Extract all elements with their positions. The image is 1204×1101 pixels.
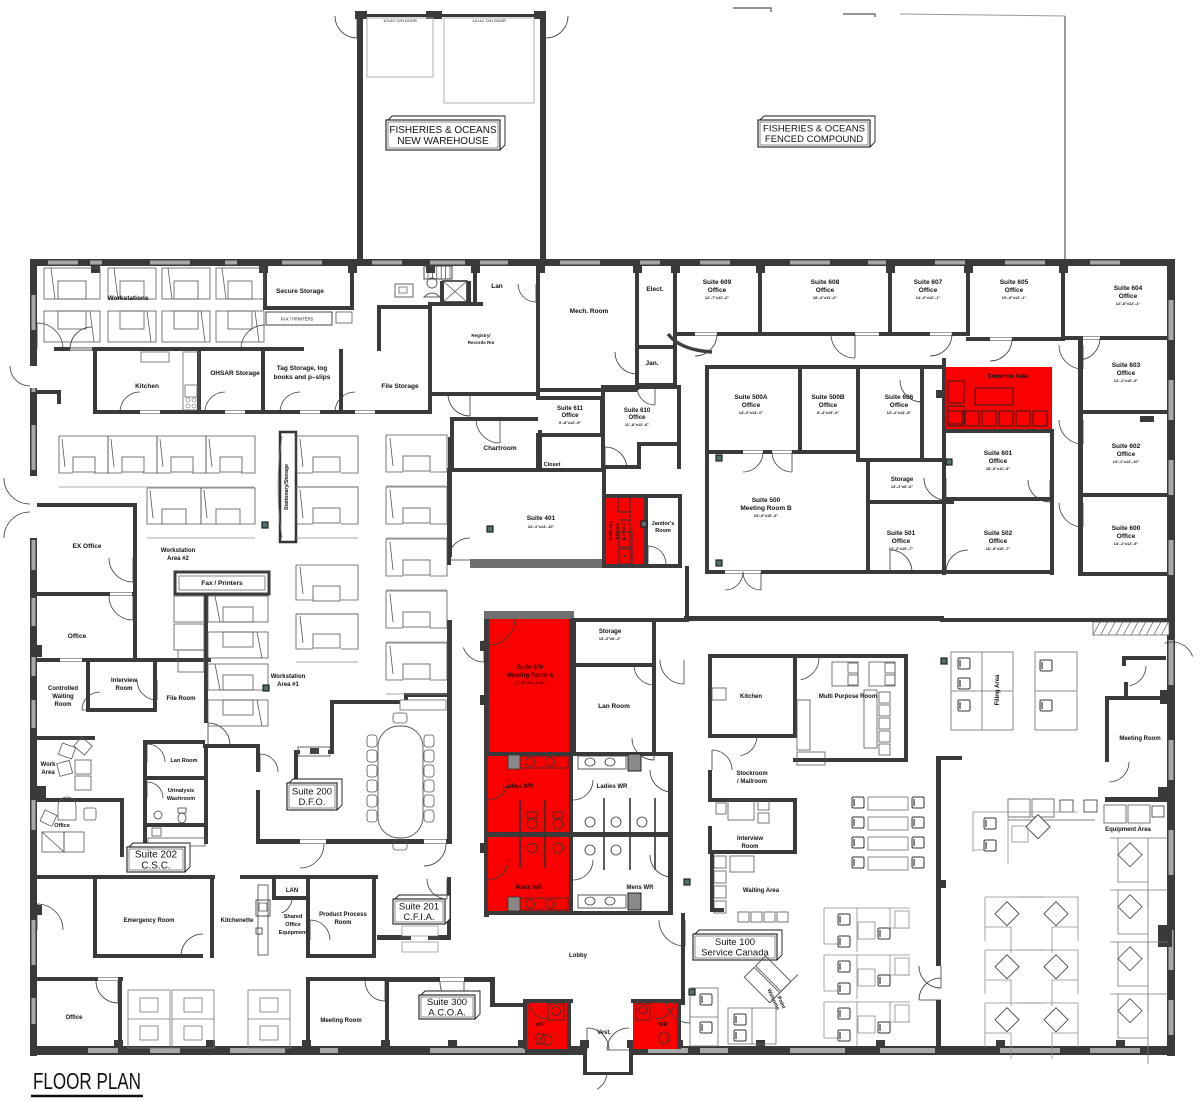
- svg-text:10'x10' O/H DOOR: 10'x10' O/H DOOR: [383, 18, 417, 23]
- svg-text:Office: Office: [54, 823, 70, 829]
- svg-text:Suite 502: Suite 502: [984, 530, 1013, 537]
- svg-text:Area: Area: [41, 770, 55, 776]
- svg-text:Fax / Printers: Fax / Printers: [201, 580, 243, 587]
- svg-text:WR: WR: [658, 1022, 667, 1028]
- svg-text:13'–10"x21'–6 1/2": 13'–10"x21'–6 1/2": [514, 681, 545, 685]
- svg-text:Suite 201: Suite 201: [399, 902, 439, 913]
- svg-text:Office: Office: [1119, 293, 1138, 300]
- svg-text:13'–2"x6'–6": 13'–2"x6'–6": [891, 485, 913, 489]
- svg-text:Interview: Interview: [737, 836, 763, 842]
- svg-text:Equipment: Equipment: [279, 930, 308, 936]
- svg-text:Suite 601: Suite 601: [984, 450, 1013, 457]
- svg-text:Office: Office: [819, 402, 838, 409]
- svg-text:Suite 608: Suite 608: [811, 279, 840, 286]
- svg-text:C.F.I.A.: C.F.I.A.: [403, 912, 434, 923]
- svg-text:Office: Office: [742, 402, 761, 409]
- svg-text:Filing Area: Filing Area: [995, 674, 1001, 705]
- svg-text:Meeting Room: Meeting Room: [320, 1018, 361, 1024]
- svg-text:Office: Office: [816, 287, 835, 294]
- svg-text:Vest.: Vest.: [597, 1030, 611, 1036]
- svg-text:8'–4"x13'–0": 8'–4"x13'–0": [817, 411, 839, 415]
- svg-text:Registry/: Registry/: [471, 333, 491, 338]
- svg-text:Room: Room: [335, 920, 352, 926]
- svg-text:Room: Room: [655, 528, 671, 534]
- svg-text:12'–7"x11'–2": 12'–7"x11'–2": [705, 296, 729, 300]
- svg-text:Area #1: Area #1: [277, 682, 299, 688]
- svg-text:Suite 100: Suite 100: [715, 937, 755, 948]
- svg-text:Mech. Room: Mech. Room: [570, 308, 609, 315]
- svg-text:Storage: Storage: [599, 629, 622, 635]
- svg-text:Tag Storage, log: Tag Storage, log: [277, 365, 327, 372]
- svg-text:Meeting Room B: Meeting Room B: [740, 505, 792, 512]
- svg-text:16'–5"x10'–7": 16'–5"x10'–7": [986, 547, 1011, 551]
- svg-text:LAN: LAN: [286, 888, 298, 894]
- svg-text:Product Process: Product Process: [319, 912, 367, 918]
- svg-text:FLOOR PLAN: FLOOR PLAN: [33, 1068, 141, 1094]
- svg-text:OHSAR Storage: OHSAR Storage: [210, 370, 260, 377]
- svg-text:Jan.: Jan.: [645, 360, 658, 367]
- svg-text:C.S.C.: C.S.C.: [141, 861, 170, 872]
- svg-text:18'–2"x11'–2": 18'–2"x11'–2": [813, 296, 837, 300]
- svg-text:18'–5"x11'–9": 18'–5"x11'–9": [986, 467, 1010, 471]
- svg-text:Office: Office: [285, 922, 301, 928]
- svg-text:Office: Office: [561, 413, 579, 419]
- svg-text:Closet: Closet: [544, 462, 561, 468]
- svg-text:Suite 202: Suite 202: [135, 850, 178, 861]
- svg-text:Office: Office: [1117, 451, 1136, 458]
- svg-text:14'x14' O/H DOOR: 14'x14' O/H DOOR: [472, 18, 506, 23]
- svg-text:Kitchen: Kitchen: [740, 694, 762, 700]
- svg-text:19'–3"x12'–1": 19'–3"x12'–1": [1002, 296, 1027, 300]
- svg-text:Suite 604: Suite 604: [1114, 285, 1143, 292]
- svg-text:Workstation: Workstation: [271, 674, 306, 680]
- svg-text:NEW WAREHOUSE: NEW WAREHOUSE: [397, 136, 489, 147]
- svg-text:Room: Room: [742, 844, 759, 850]
- svg-text:Work: Work: [41, 762, 57, 768]
- svg-text:FISHERIES & OCEANS: FISHERIES & OCEANS: [389, 125, 497, 136]
- svg-text:Suite 501: Suite 501: [887, 530, 916, 537]
- svg-text:Suite 611: Suite 611: [557, 406, 584, 412]
- svg-text:File Room: File Room: [166, 696, 195, 702]
- svg-text:Office: Office: [892, 538, 911, 545]
- svg-text:6'–6"x10'–7": 6'–6"x10'–7": [622, 521, 626, 540]
- svg-text:12'–8"x12'–1": 12'–8"x12'–1": [1116, 302, 1141, 306]
- svg-text:Suite 609: Suite 609: [703, 279, 732, 286]
- svg-text:FISHERIES & OCEANS: FISHERIES & OCEANS: [763, 124, 865, 135]
- svg-text:Lan Room: Lan Room: [598, 703, 630, 710]
- svg-text:Office: Office: [65, 1015, 83, 1021]
- svg-text:Emergency Room: Emergency Room: [123, 918, 174, 924]
- svg-text:/ Mailroom: / Mailroom: [737, 779, 767, 785]
- svg-text:EX Office: EX Office: [73, 543, 102, 550]
- svg-text:Suite 605: Suite 605: [1000, 279, 1029, 286]
- svg-text:14'–0"x13'–0": 14'–0"x13'–0": [739, 411, 764, 415]
- svg-text:D.F.O.: D.F.O.: [299, 797, 326, 808]
- svg-text:Workstation: Workstation: [161, 548, 196, 554]
- svg-text:Office: Office: [1005, 287, 1024, 294]
- svg-text:FENCED COMPOUND: FENCED COMPOUND: [765, 134, 863, 145]
- svg-text:Secure Storage: Secure Storage: [276, 288, 324, 295]
- svg-text:Office: Office: [989, 458, 1008, 465]
- svg-text:Lobby: Lobby: [569, 953, 588, 959]
- svg-text:Suite 607: Suite 607: [914, 279, 943, 286]
- svg-text:Ladies WR: Ladies WR: [597, 784, 628, 790]
- svg-text:Office: Office: [1117, 370, 1136, 377]
- svg-text:14'–1"x12'–9": 14'–1"x12'–9": [1114, 542, 1139, 546]
- svg-text:13'–2"x14'–8": 13'–2"x14'–8": [887, 411, 912, 415]
- svg-text:14'–0"x12'–1": 14'–0"x12'–1": [916, 296, 941, 300]
- svg-text:Storage: Storage: [891, 477, 914, 483]
- svg-text:Workstations: Workstations: [107, 295, 148, 302]
- svg-text:Suite 300: Suite 300: [427, 997, 467, 1008]
- svg-text:Interview: Interview: [111, 678, 137, 684]
- svg-text:Elect.: Elect.: [646, 286, 664, 293]
- svg-text:Office: Office: [68, 633, 87, 640]
- svg-text:Suite 606: Suite 606: [885, 394, 914, 401]
- svg-text:Office: Office: [1117, 533, 1136, 540]
- svg-text:Equipment Area: Equipment Area: [1105, 827, 1151, 833]
- svg-text:9'–8"x12'–9": 9'–8"x12'–9": [559, 421, 581, 425]
- svg-text:Office: Office: [890, 402, 909, 409]
- svg-text:Suite 602: Suite 602: [1112, 443, 1141, 450]
- svg-text:Suite 600: Suite 600: [1112, 525, 1141, 532]
- svg-text:Multi Purpose Room: Multi Purpose Room: [819, 694, 877, 700]
- svg-text:24'–1"x14'–10": 24'–1"x14'–10": [528, 525, 555, 529]
- svg-text:Room: Room: [116, 686, 133, 692]
- svg-text:11'–8"x12'–6": 11'–8"x12'–6": [625, 423, 649, 427]
- svg-text:Lan Room: Lan Room: [171, 758, 198, 764]
- svg-text:books and p–slips: books and p–slips: [274, 374, 331, 381]
- svg-text:Suite 500B: Suite 500B: [811, 394, 845, 401]
- svg-text:Room: Room: [55, 702, 72, 708]
- svg-text:Meeting Room: Meeting Room: [1119, 736, 1160, 742]
- svg-text:14'–1"x12'–10": 14'–1"x12'–10": [1113, 460, 1140, 464]
- svg-text:23'–9"x16'–6": 23'–9"x16'–6": [754, 514, 779, 518]
- svg-text:Janitor's: Janitor's: [652, 521, 675, 527]
- svg-text:Office: Office: [628, 415, 646, 421]
- svg-text:Kitchen: Kitchen: [135, 383, 159, 390]
- svg-text:Controlled: Controlled: [48, 686, 78, 692]
- svg-text:Suite 400: Suite 400: [517, 665, 544, 671]
- svg-text:Office: Office: [919, 287, 938, 294]
- svg-text:WR: WR: [535, 1022, 544, 1028]
- svg-text:Suite 610: Suite 610: [624, 408, 651, 414]
- svg-text:Meeting Room A: Meeting Room A: [506, 673, 554, 679]
- svg-text:Suite 200: Suite 200: [292, 787, 332, 798]
- svg-text:Washroom: Washroom: [167, 796, 195, 802]
- svg-text:Common Area: Common Area: [988, 374, 1029, 380]
- svg-text:Office: Office: [989, 538, 1008, 545]
- svg-text:Shared: Shared: [284, 914, 303, 920]
- svg-text:Chartroom: Chartroom: [483, 445, 516, 452]
- svg-text:Stationary/Storage: Stationary/Storage: [284, 464, 290, 510]
- svg-text:Kitchenette: Kitchenette: [221, 918, 254, 924]
- svg-text:Urinalysis: Urinalysis: [168, 788, 194, 794]
- svg-text:A.C.O.A.: A.C.O.A.: [428, 1008, 465, 1019]
- svg-text:Stockroom: Stockroom: [736, 771, 767, 777]
- svg-text:Suite 500A: Suite 500A: [734, 394, 768, 401]
- svg-text:File Storage: File Storage: [381, 383, 419, 390]
- svg-text:Service Canada: Service Canada: [701, 948, 769, 959]
- svg-text:Suite 500: Suite 500: [752, 497, 781, 504]
- svg-text:Mens WR: Mens WR: [516, 885, 544, 891]
- svg-text:Suite 603: Suite 603: [1112, 362, 1141, 369]
- svg-text:Waiting: Waiting: [52, 694, 74, 700]
- svg-text:Records Rm: Records Rm: [468, 340, 495, 345]
- svg-text:Lan: Lan: [491, 283, 503, 290]
- svg-text:FAX / PRINTERS: FAX / PRINTERS: [281, 317, 314, 322]
- svg-text:Waiting Area: Waiting Area: [743, 888, 780, 894]
- svg-text:13'–0"x6'–2": 13'–0"x6'–2": [599, 637, 621, 641]
- svg-text:Office: Office: [708, 287, 727, 294]
- svg-text:Mens WR: Mens WR: [627, 885, 655, 891]
- svg-text:Suite 401: Suite 401: [527, 515, 556, 522]
- svg-text:14'–1"x10'–9": 14'–1"x10'–9": [1114, 379, 1139, 383]
- svg-text:Area #2: Area #2: [167, 556, 189, 562]
- svg-text:Suite 402: Suite 402: [608, 521, 613, 541]
